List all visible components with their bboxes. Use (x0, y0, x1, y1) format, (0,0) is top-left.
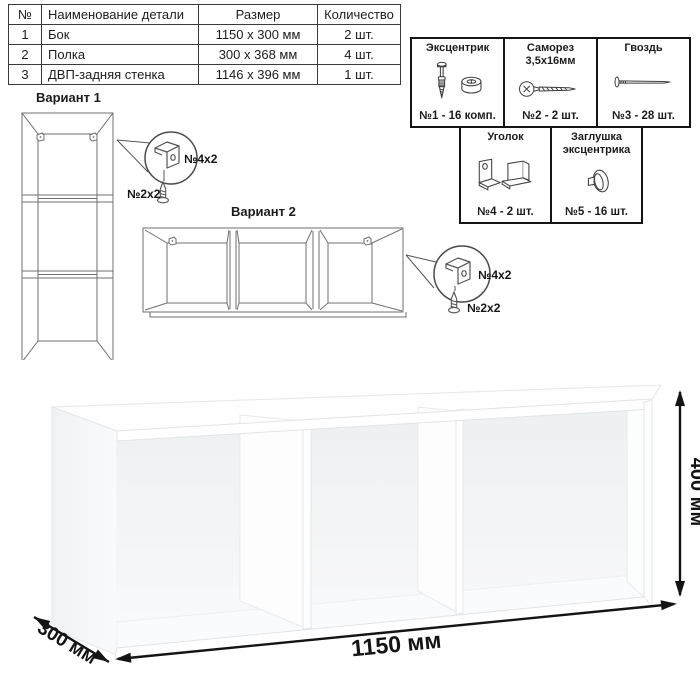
hardware-item-title: Гвоздь (621, 42, 665, 55)
shelf-bracket-icon (364, 237, 371, 245)
product-3d-view: 1150 мм 300 мм 400 мм (0, 360, 700, 690)
parts-header-size: Размер (199, 5, 318, 25)
part-qty: 2 шт. (318, 25, 401, 45)
assembly-variants-diagram: №4х2 №2х2 №4х2 №2х2 (0, 88, 700, 360)
assembly-instruction-sheet: № Наименование детали Размер Количество … (0, 0, 700, 690)
parts-header-name: Наименование детали (42, 5, 199, 25)
shelf-bracket-icon (90, 133, 97, 141)
divider2-face (418, 407, 456, 612)
part-size: 300 x 368 мм (199, 45, 318, 65)
part-name: Полка (42, 45, 199, 65)
front-right-strip (644, 400, 652, 607)
variant2-drawing (143, 228, 406, 317)
variant2-callout: №4х2 №2х2 (406, 246, 512, 315)
parts-header-num: № (9, 5, 42, 25)
shelf-bracket-icon (37, 133, 44, 141)
screw-label: №2х2 (127, 187, 161, 201)
bracket-label: №4х2 (478, 268, 512, 282)
part-num: 1 (9, 25, 42, 45)
arrowhead-icon (661, 600, 677, 610)
part-qty: 1 шт. (318, 65, 401, 85)
part-num: 2 (9, 45, 42, 65)
part-size: 1150 x 300 мм (199, 25, 318, 45)
part-name: ДВП-задняя стенка (42, 65, 199, 85)
part-name: Бок (42, 25, 199, 45)
hardware-item-title: Саморез 3,5х16мм (505, 42, 596, 67)
screw-label: №2х2 (467, 301, 501, 315)
divider2-edge (456, 409, 463, 614)
parts-header-qty: Количество (318, 5, 401, 25)
shelf-bracket-icon (169, 237, 176, 245)
part-size: 1146 x 396 мм (199, 65, 318, 85)
arrowhead-icon (675, 581, 685, 597)
shelf-left-face (52, 407, 117, 655)
bracket-label: №4х2 (184, 152, 218, 166)
shelf-unit-render (52, 385, 661, 658)
arrowhead-icon (675, 390, 685, 406)
variant1-callout: №4х2 №2х2 (117, 132, 218, 203)
variant1-drawing (22, 113, 117, 360)
part-num: 3 (9, 65, 42, 85)
parts-table-row: 1 Бок 1150 x 300 мм 2 шт. (9, 25, 401, 45)
part-qty: 4 шт. (318, 45, 401, 65)
divider1-edge (303, 419, 311, 629)
parts-table-header-row: № Наименование детали Размер Количество (9, 5, 401, 25)
parts-table-row: 2 Полка 300 x 368 мм 4 шт. (9, 45, 401, 65)
parts-table: № Наименование детали Размер Количество … (8, 4, 401, 85)
parts-table-row: 3 ДВП-задняя стенка 1146 x 396 мм 1 шт. (9, 65, 401, 85)
height-dimension-label: 400 мм (686, 458, 700, 527)
hardware-item-title: Эксцентрик (423, 42, 492, 55)
divider1-face (240, 415, 303, 627)
right-panel-face (627, 401, 645, 598)
